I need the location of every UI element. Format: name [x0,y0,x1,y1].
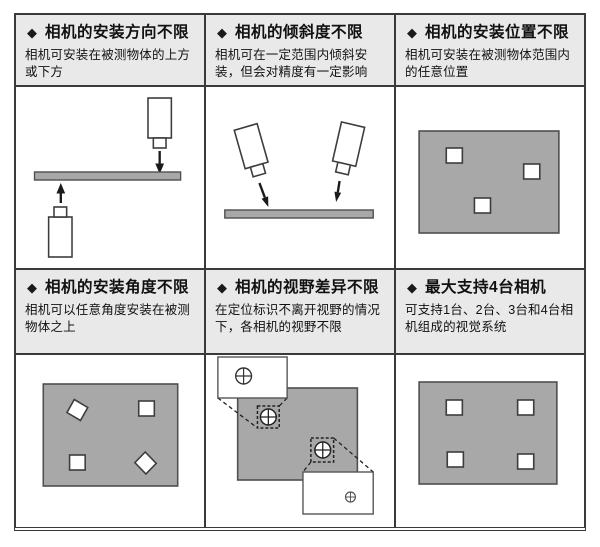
marker-square [446,400,462,415]
diamond-bullet-icon: ◆ [25,26,37,39]
panel-title: 相机的安装方向不限 [45,24,189,42]
tilted-arrow-icon [259,183,264,198]
figure-camera-fov [205,354,395,528]
panel-header-angle: ◆ 相机的安装角度不限 相机可以任意角度安装在被测物体之上 [15,269,205,354]
panel-header-tilt: ◆ 相机的倾斜度不限 相机可在一定范围内倾斜安装，但会对精度有一定影响 [205,14,395,86]
panel-description: 在定位标识不离开视野的情况下，各相机的视野不限 [215,302,385,337]
measured-object-rect [419,382,557,484]
figure-four-cameras [395,354,585,528]
marker-square [70,455,86,470]
marker-square [447,452,463,467]
panel-description: 相机可在一定范围内倾斜安装，但会对精度有一定影响 [215,47,385,82]
crosshair-marker-icon [236,368,252,384]
panel-header-fov: ◆ 相机的视野差异不限 在定位标识不离开视野的情况下，各相机的视野不限 [205,269,395,354]
crosshair-marker-icon [315,442,331,458]
figure-camera-direction [15,86,205,269]
measured-object-rect [43,384,177,486]
marker-square [524,164,540,179]
camera-icon [330,122,364,176]
crosshair-marker-icon [260,409,276,425]
marker-square [446,148,462,163]
measured-object-rect [238,388,358,480]
panel-header-position: ◆ 相机的安装位置不限 相机可安装在被测物体范围内的任意位置 [395,14,585,86]
camera-view-rect [303,472,373,514]
panel-header-direction: ◆ 相机的安装方向不限 相机可安装在被测物体的上方或下方 [15,14,205,86]
diamond-bullet-icon: ◆ [405,26,417,39]
camera-icon [49,207,72,257]
marker-square [518,454,534,469]
diamond-bullet-icon: ◆ [215,281,227,294]
panel-description: 相机可安装在被测物体的上方或下方 [25,47,195,82]
diamond-bullet-icon: ◆ [405,281,417,294]
panel-header-max-cameras: ◆ 最大支持4台相机 可支持1台、2台、3台和4台相机组成的视觉系统 [395,269,585,354]
panel-title: 相机的安装角度不限 [45,279,189,297]
measured-object-bar [35,172,181,180]
diamond-bullet-icon: ◆ [25,281,37,294]
figure-camera-position [395,86,585,269]
tilted-arrow-head [334,192,341,202]
figure-camera-tilt [205,86,395,269]
panel-description: 相机可安装在被测物体范围内的任意位置 [405,47,575,82]
camera-view-rect [218,357,287,398]
panel-title: 最大支持4台相机 [425,279,546,297]
panel-description: 相机可以任意角度安装在被测物体之上 [25,302,195,337]
panel-description: 可支持1台、2台、3台和4台相机组成的视觉系统 [405,302,575,337]
measured-object-rect [419,131,559,233]
camera-icon [234,124,270,179]
panel-title: 相机的倾斜度不限 [235,24,363,42]
figure-camera-angle [15,354,205,528]
diamond-bullet-icon: ◆ [215,26,227,39]
measured-object-bar [225,210,373,218]
tilted-arrow-icon [338,181,340,192]
marker-square [518,400,534,415]
tilted-arrow-head [262,196,269,207]
panel-title: 相机的视野差异不限 [235,279,379,297]
panel-title: 相机的安装位置不限 [425,24,569,42]
feature-grid: ◆ 相机的安装方向不限 相机可安装在被测物体的上方或下方 ◆ 相机的倾斜度不限 … [14,13,586,531]
crosshair-marker-icon [346,492,356,502]
marker-square [474,198,490,213]
marker-square [139,401,155,416]
camera-icon [148,98,171,148]
